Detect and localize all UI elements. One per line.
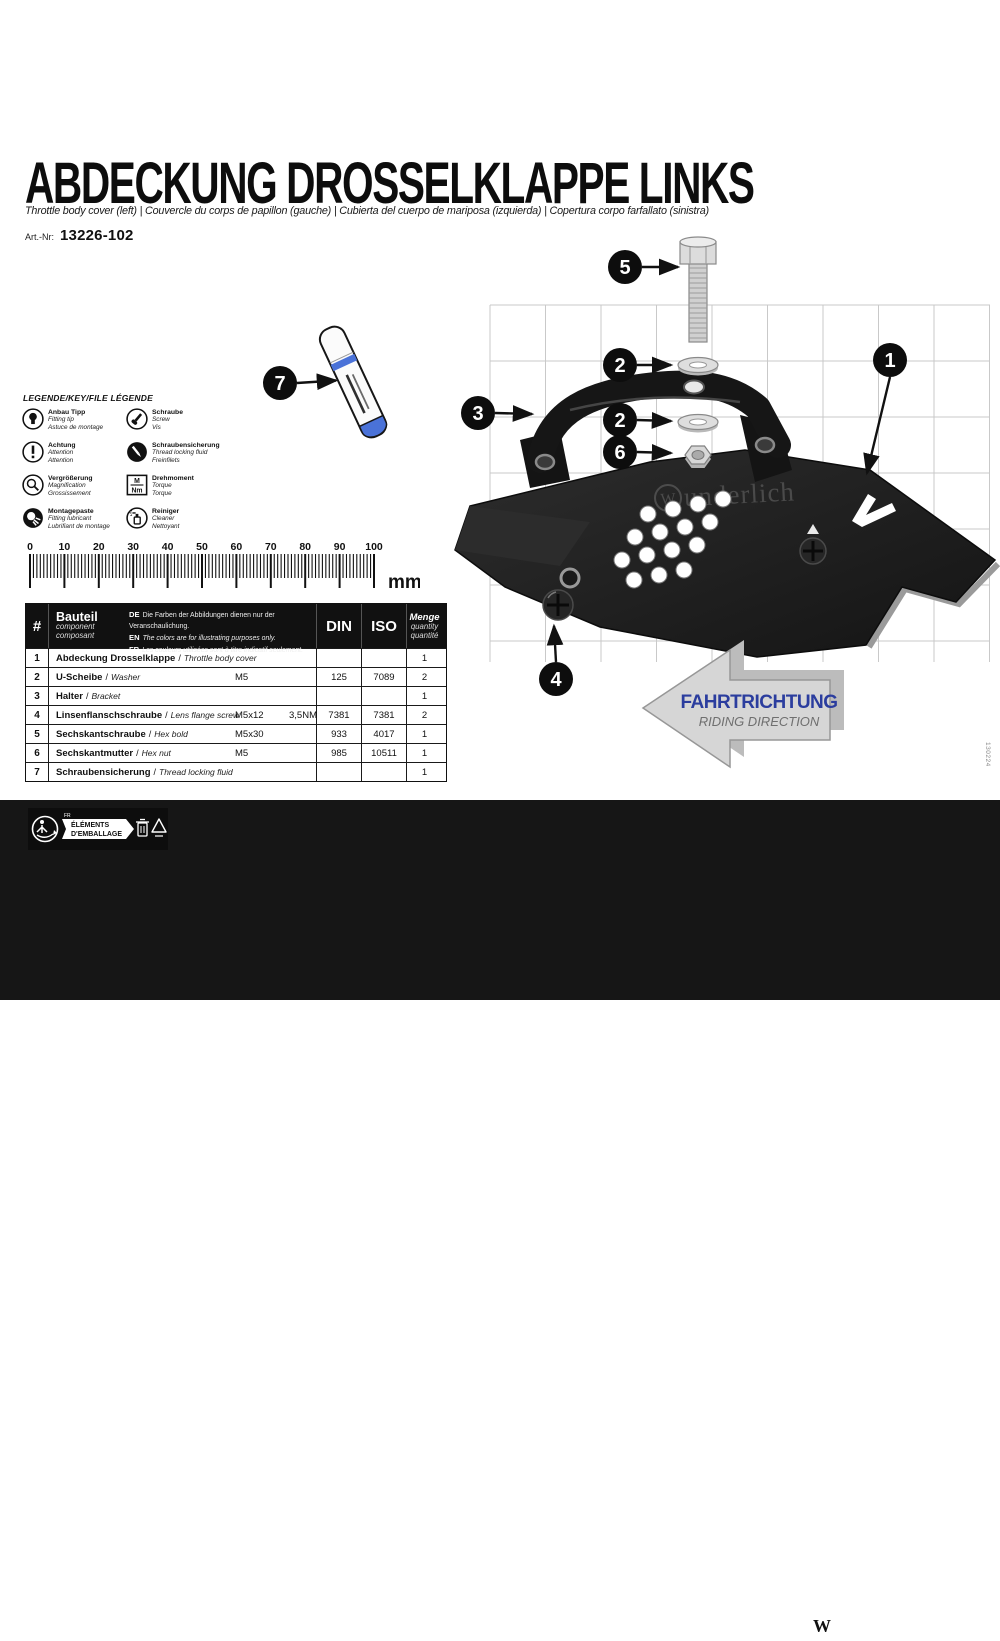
- col-part-en: component: [56, 622, 98, 631]
- svg-text:30: 30: [127, 541, 139, 553]
- cell-number: 5: [26, 725, 48, 743]
- threadlock-pen-figure: 7: [250, 295, 410, 460]
- page-subtitle: Throttle body cover (left) | Couvercle d…: [25, 205, 709, 217]
- callout-7-number: 7: [274, 373, 285, 395]
- svg-text:6: 6: [614, 442, 625, 464]
- cell-din: 7381: [316, 706, 361, 724]
- exploded-diagram: W underlich: [440, 230, 1000, 790]
- svg-text:90: 90: [334, 541, 346, 553]
- svg-text:10: 10: [59, 541, 71, 553]
- cell-qty: 1: [406, 649, 442, 667]
- legend-item-screw: SchraubeScrewVis: [126, 408, 266, 441]
- svg-text:40: 40: [162, 541, 174, 553]
- table-row-7: 7Schraubensicherung/Thread locking fluid…: [26, 762, 446, 781]
- svg-text:60: 60: [231, 541, 243, 553]
- col-part: Bauteil component composant DEDie Farben…: [48, 604, 316, 648]
- screw-icon: [126, 408, 148, 430]
- legend-item-magnifier: VergrößerungMagnificationGrossissement: [22, 474, 126, 507]
- riding-direction-arrow: FAHRTRICHTUNG RIDING DIRECTION: [643, 640, 844, 767]
- cell-size: M5: [235, 748, 248, 759]
- col-hash: #: [26, 604, 48, 648]
- magnifier-icon: [22, 474, 44, 496]
- riding-direction-label-de: FAHRTRICHTUNG: [680, 692, 837, 713]
- cell-part-name: Linsenflanschschraube/Lens flange screwM…: [48, 706, 316, 724]
- ruler-unit-label: mm: [388, 572, 420, 593]
- packaging-country: FR: [64, 813, 71, 819]
- table-row-1: 1Abdeckung Drosselklappe/Throttle body c…: [26, 648, 446, 667]
- washer-lower-part: [678, 415, 718, 433]
- svg-text:5: 5: [619, 257, 630, 279]
- brand-logo: W Wunderlich ®: [807, 1611, 975, 1641]
- callout-2-lower: 2: [603, 403, 671, 437]
- page-number: 1: [455, 1618, 485, 1633]
- svg-text:80: 80: [299, 541, 311, 553]
- svg-text:0: 0: [27, 541, 33, 553]
- legend-item-text: Anbau TippFitting tipAstuce de montage: [48, 408, 103, 431]
- cell-din: 125: [316, 668, 361, 686]
- cell-din: 933: [316, 725, 361, 743]
- callout-7: 7: [263, 366, 336, 400]
- table-row-3: 3Halter/Bracket1: [26, 686, 446, 705]
- legend-item-exclamation: AchtungAttentionAttention: [22, 441, 126, 474]
- instruction-sheet: { "page": {"code": "130224"}, "header": …: [0, 0, 1000, 1000]
- cell-iso: 7381: [361, 706, 406, 724]
- footer-bar: FR ÉLÉMENTS D'EMBALLAGE 1 W Wunderlich ®: [0, 800, 1000, 1000]
- callout-5: 5: [608, 250, 678, 284]
- threadlock-icon: [126, 441, 148, 463]
- legend-item-bulb: Anbau TippFitting tipAstuce de montage: [22, 408, 126, 441]
- cell-iso: 10511: [361, 744, 406, 762]
- legend-item-text: SchraubeScrewVis: [152, 408, 183, 431]
- parts-table: # Bauteil component composant DEDie Farb…: [25, 603, 447, 782]
- svg-text:2: 2: [614, 410, 625, 432]
- riding-direction-label-en: RIDING DIRECTION: [699, 714, 820, 729]
- table-row-5: 5Sechskantschraube/Hex boldM5x3093340171: [26, 724, 446, 743]
- svg-text:100: 100: [365, 541, 383, 553]
- cell-number: 3: [26, 687, 48, 705]
- col-part-label: Bauteil component composant: [49, 613, 98, 640]
- cell-iso: [361, 687, 406, 705]
- legend-item-cleaner: ReinigerCleanerNettoyant: [126, 507, 266, 540]
- article-number-label: Art.-Nr:: [25, 232, 54, 242]
- cell-part-name: Schraubensicherung/Thread locking fluid: [48, 763, 316, 781]
- scale-ruler: 0102030405060708090100 mm: [20, 538, 420, 598]
- bulb-icon: [22, 408, 44, 430]
- cell-number: 7: [26, 763, 48, 781]
- cell-iso: [361, 763, 406, 781]
- svg-text:50: 50: [196, 541, 208, 553]
- cell-size: M5: [235, 672, 248, 683]
- cell-torque: 3,5NM: [289, 710, 317, 721]
- cell-din: [316, 649, 361, 667]
- brand-w-icon: W: [807, 1611, 837, 1641]
- svg-text:Nm: Nm: [131, 487, 142, 494]
- cell-qty: 1: [406, 763, 442, 781]
- cell-number: 6: [26, 744, 48, 762]
- legend: Anbau TippFitting tipAstuce de montageAc…: [22, 408, 266, 540]
- legend-item-grease: MontagepasteFitting lubricantLubrifiant …: [22, 507, 126, 540]
- cell-part-name: U-Scheibe/WasherM5: [48, 668, 316, 686]
- hex-bolt-part: [680, 237, 716, 342]
- cell-iso: 7089: [361, 668, 406, 686]
- legend-item-text: SchraubensicherungThread locking fluidFr…: [152, 441, 220, 464]
- parts-table-header: # Bauteil component composant DEDie Farb…: [26, 604, 446, 648]
- table-row-6: 6Sechskantmutter/Hex nutM5985105111: [26, 743, 446, 762]
- col-part-de: Bauteil: [56, 613, 98, 622]
- cell-din: [316, 763, 361, 781]
- col-din: DIN: [316, 604, 361, 648]
- cell-din: 985: [316, 744, 361, 762]
- packaging-line2: D'EMBALLAGE: [71, 831, 122, 838]
- legend-item-text: MontagepasteFitting lubricantLubrifiant …: [48, 507, 110, 530]
- cell-din: [316, 687, 361, 705]
- cell-part-name: Sechskantmutter/Hex nutM5: [48, 744, 316, 762]
- torque-icon: MNm: [126, 474, 148, 496]
- cell-qty: 1: [406, 725, 442, 743]
- cell-qty: 1: [406, 687, 442, 705]
- packaging-mark: FR ÉLÉMENTS D'EMBALLAGE: [28, 808, 168, 850]
- svg-text:70: 70: [265, 541, 277, 553]
- svg-text:W: W: [813, 1616, 831, 1636]
- brand-registered-mark: ®: [970, 1614, 975, 1621]
- legend-item-text: DrehmomentTorqueTorque: [152, 474, 194, 497]
- print-code: 130224: [984, 742, 991, 767]
- table-row-4: 4Linsenflanschschraube/Lens flange screw…: [26, 705, 446, 724]
- cell-number: 1: [26, 649, 48, 667]
- cell-size: M5x30: [235, 729, 264, 740]
- svg-text:2: 2: [614, 355, 625, 377]
- table-row-2: 2U-Scheibe/WasherM512570892: [26, 667, 446, 686]
- cell-part-name: Halter/Bracket: [48, 687, 316, 705]
- svg-text:20: 20: [93, 541, 105, 553]
- callout-3: 3: [461, 396, 532, 430]
- cell-number: 4: [26, 706, 48, 724]
- ruler-ticks: 0102030405060708090100: [27, 541, 383, 588]
- legend-item-text: AchtungAttentionAttention: [48, 441, 76, 464]
- svg-text:3: 3: [472, 403, 483, 425]
- svg-text:1: 1: [884, 350, 895, 372]
- washer-upper-part: [678, 358, 718, 376]
- cell-qty: 2: [406, 706, 442, 724]
- packaging-line1: ÉLÉMENTS: [71, 820, 109, 829]
- article-number-row: Art.-Nr:13226-102: [25, 227, 134, 245]
- grease-icon: [22, 507, 44, 529]
- legend-item-text: VergrößerungMagnificationGrossissement: [48, 474, 93, 497]
- legend-item-threadlock: SchraubensicherungThread locking fluidFr…: [126, 441, 266, 474]
- cell-part-name: Sechskantschraube/Hex boldM5x30: [48, 725, 316, 743]
- cell-part-name: Abdeckung Drosselklappe/Throttle body co…: [48, 649, 316, 667]
- svg-text:4: 4: [550, 669, 562, 691]
- cell-iso: 4017: [361, 725, 406, 743]
- col-part-fr: composant: [56, 631, 98, 640]
- exclamation-icon: [22, 441, 44, 463]
- cell-qty: 2: [406, 668, 442, 686]
- col-iso: ISO: [361, 604, 406, 648]
- brand-name: Wunderlich: [842, 1611, 969, 1641]
- cell-qty: 1: [406, 744, 442, 762]
- svg-text:M: M: [134, 478, 140, 485]
- callout-4: 4: [539, 626, 573, 696]
- parts-table-body: 1Abdeckung Drosselklappe/Throttle body c…: [26, 648, 446, 781]
- cell-size: M5x12: [235, 710, 264, 721]
- cell-iso: [361, 649, 406, 667]
- col-qty: Menge quantity quantité: [406, 604, 442, 648]
- callout-1: 1: [867, 343, 907, 473]
- cell-number: 2: [26, 668, 48, 686]
- cleaner-icon: [126, 507, 148, 529]
- legend-item-torque: MNmDrehmomentTorqueTorque: [126, 474, 266, 507]
- article-number: 13226-102: [60, 227, 134, 244]
- legend-item-text: ReinigerCleanerNettoyant: [152, 507, 179, 530]
- legend-title: LEGENDE/KEY/FILE LÉGENDE: [23, 393, 153, 403]
